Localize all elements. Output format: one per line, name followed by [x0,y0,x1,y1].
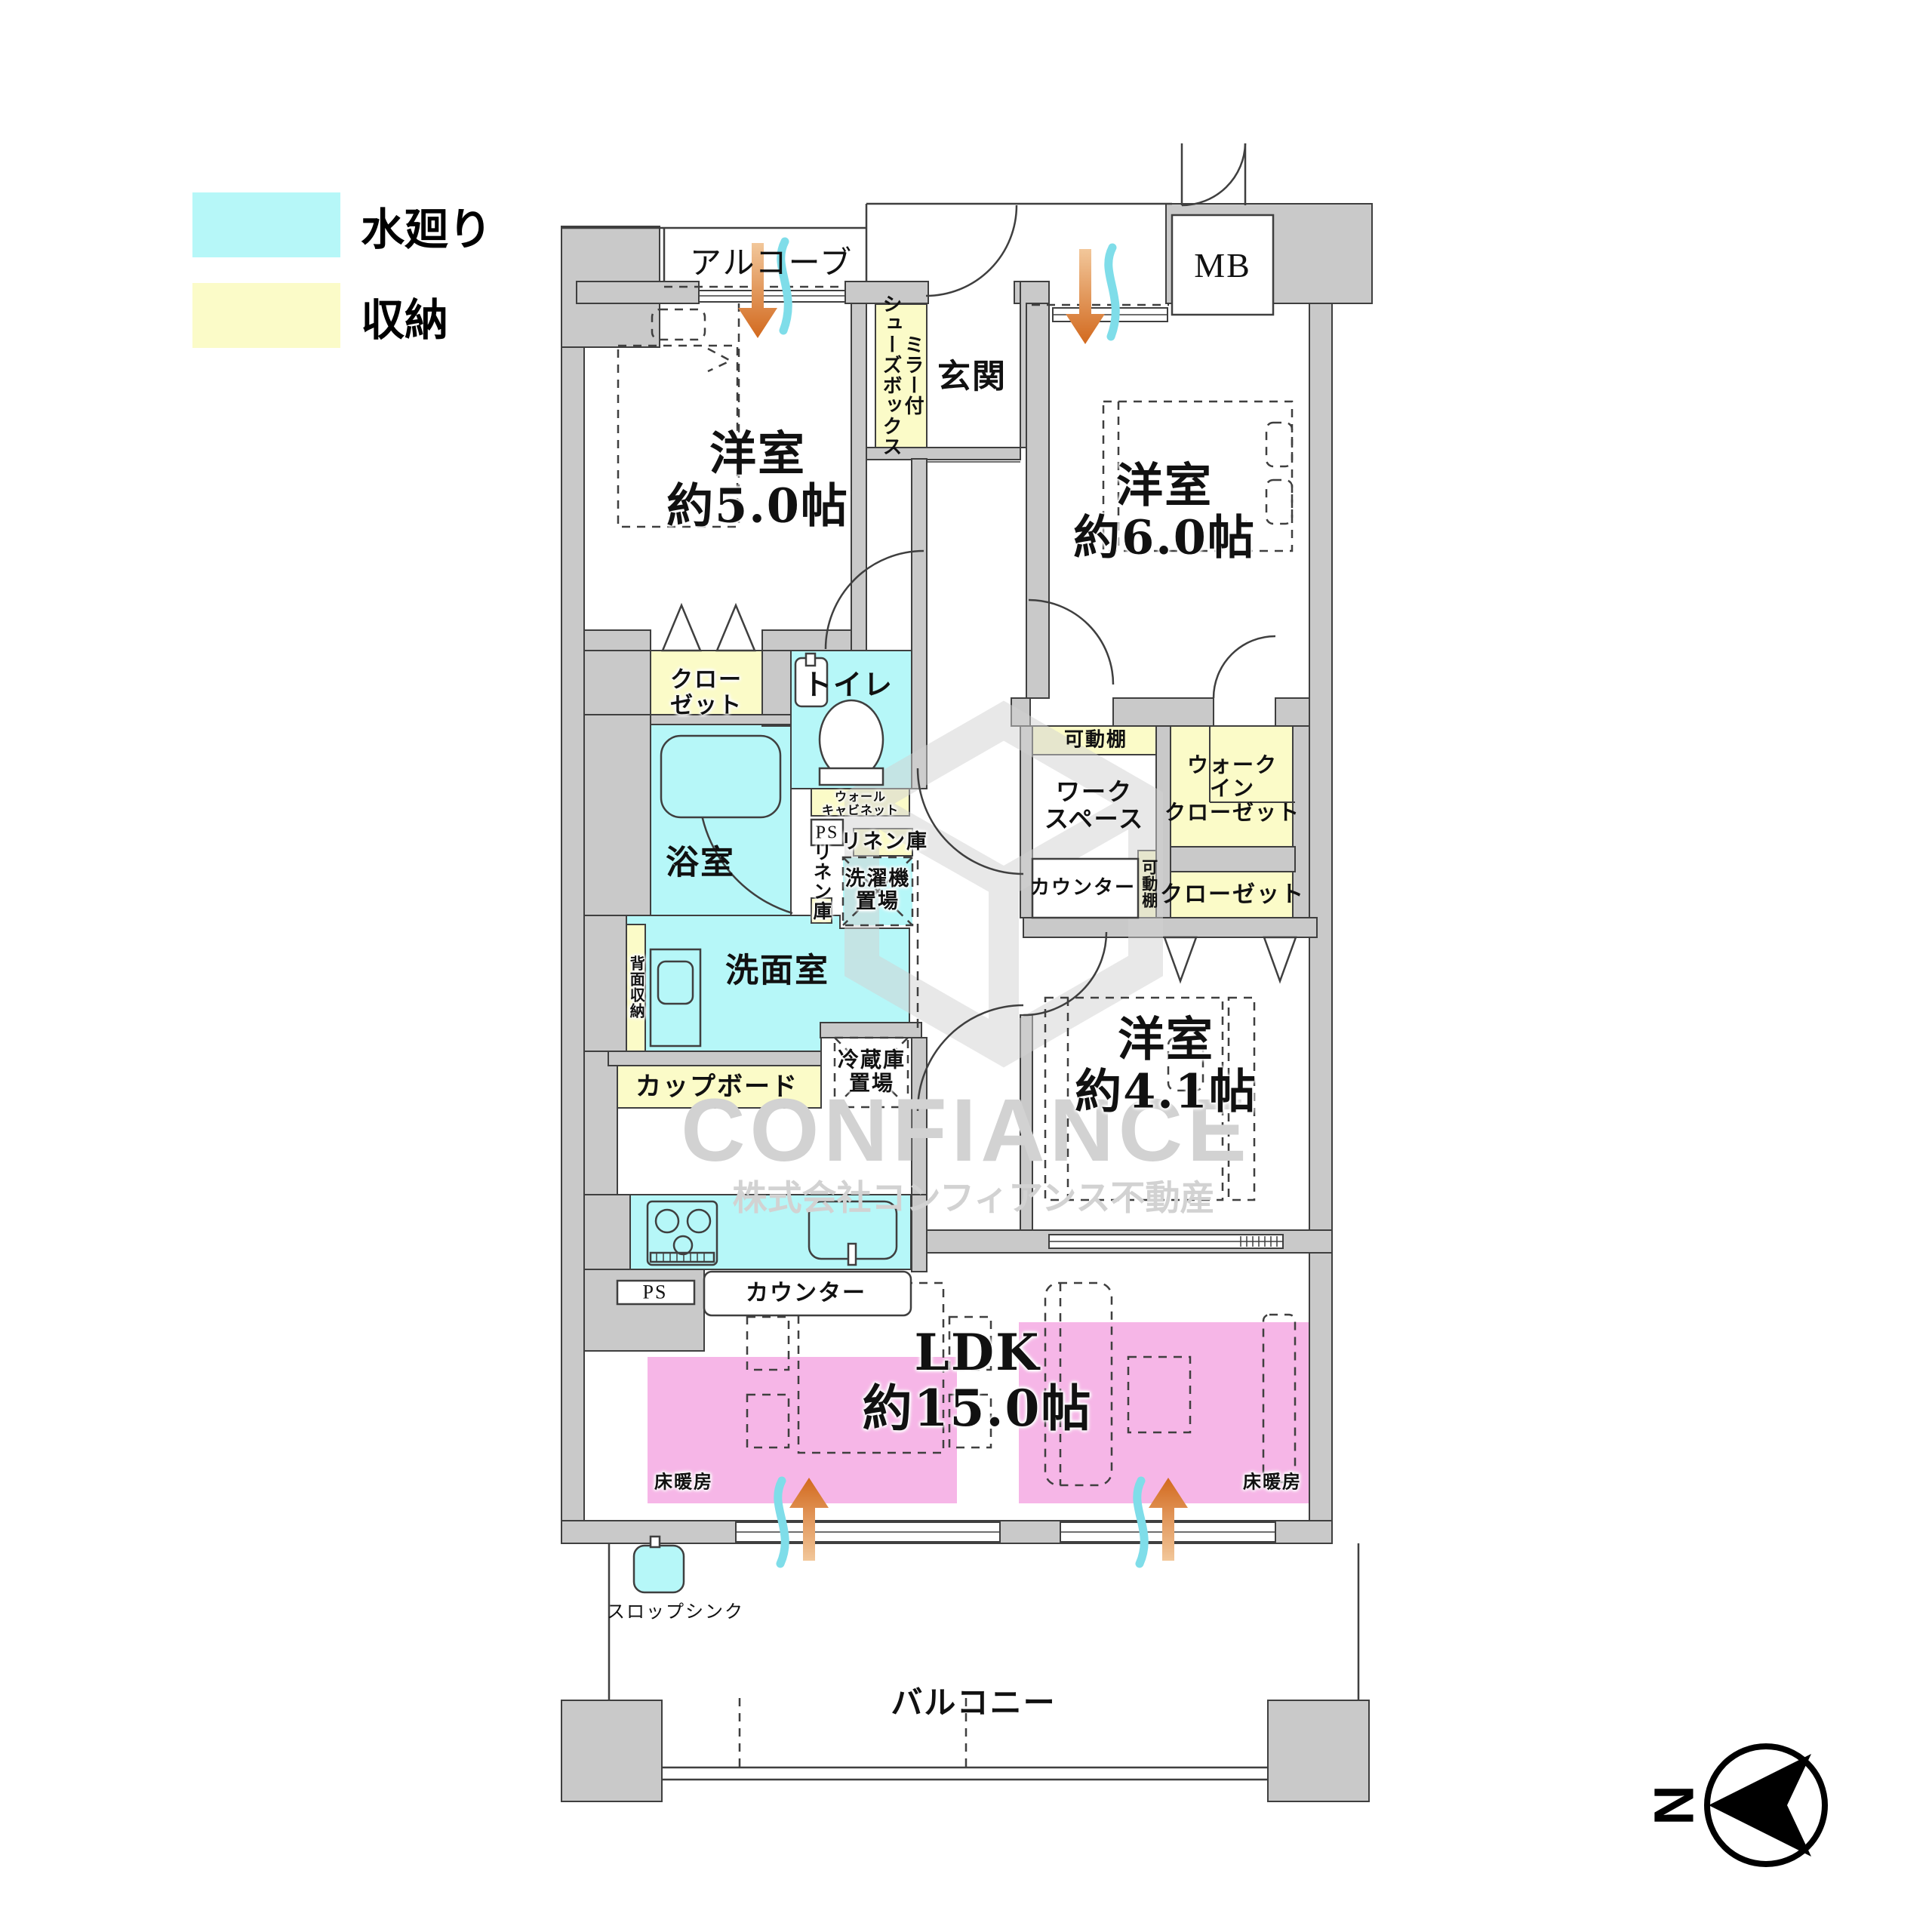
label-cupboard: カップボード [635,1072,798,1101]
kitchen-tap [848,1244,856,1265]
watermark-company: 株式会社コンフィアンス不動産 [733,1171,1215,1220]
w6-wave-icon [1109,248,1115,337]
label-shoebox: ミラー付 シューズボックス [879,294,923,457]
wall-w5-right [851,303,866,651]
label-wall-cabinet: ウォール キャビネット [822,790,899,817]
wall-filler-a [584,651,651,724]
label-washroom: 洗面室 [725,952,829,989]
slop-sink-tap [651,1537,660,1547]
w6-pillow-a [1266,423,1292,466]
label-closet-b: クローゼット [1160,882,1305,908]
compass [1707,1746,1825,1864]
hanger-triangle-4 [1264,937,1296,981]
label-counter-work: カウンター [1030,877,1136,899]
wall-filler-e [584,1051,617,1195]
wall-filler-c [584,715,651,915]
wall-w5-bottom-a [584,630,651,651]
label-western6: 洋室 約6.0帖 [1073,460,1256,565]
compass-north-label: N [1642,1785,1706,1825]
pillar-balcony-right [1268,1700,1369,1801]
w6-arrow-icon [1066,249,1105,344]
mb-door-arc [1182,143,1245,205]
legend-storage-label: 収納 [361,285,448,348]
wall-filler-f [584,1195,630,1269]
label-ldk: LDK 約15.0帖 [863,1325,1093,1437]
label-floor-heating-left: 床暖房 [654,1472,713,1493]
wall-left [561,226,584,1543]
label-floor-heating-right: 床暖房 [1243,1472,1302,1493]
label-bath: 浴室 [666,844,735,881]
label-wic: ウォーク イン クローゼット [1164,753,1300,824]
bathtub [661,736,780,817]
floorplan-canvas: 水廻り 収納 CONFIANCE 株式会社コンフィアンス不動産 アルコーブ MB… [0,0,1932,1932]
label-slop-sink: スロップシンク [607,1602,744,1623]
toilet-sink-tap [806,654,815,666]
wall-washroom-bottom-a [820,1023,921,1038]
toilet-tank [820,768,883,785]
label-back-storage: 背面収納 [628,955,645,1019]
label-closet-a: クロー ゼット [670,667,743,718]
label-ps-a: PS [816,823,839,844]
wall-w5-bottom-b [762,630,851,651]
label-fridge: 冷蔵庫 置場 [838,1048,906,1096]
label-workspace: ワーク スペース [1044,779,1144,833]
slop-sink-box [634,1546,684,1592]
label-mb: MB [1194,246,1251,285]
pillar-balcony-left [561,1700,662,1801]
wall-wic-closet-divider [1171,847,1295,872]
label-alcove: アルコーブ [690,245,853,280]
hanger-triangle-3 [1164,937,1196,981]
hanger-triangle-1 [663,605,700,651]
wall-closets-bottom [1023,918,1317,937]
label-balcony: バルコニー [891,1684,1056,1720]
label-genkan: 玄関 [937,358,1007,395]
vanity-bowl [658,961,693,1004]
wall-hall-left-a [912,459,927,789]
wall-top-a [577,281,699,303]
wall-filler-d [584,915,626,1051]
label-toilet: トイレ [803,669,894,702]
label-linen-a: リネン庫 [841,831,928,854]
legend-storage-swatch [192,283,340,348]
label-counter-kitchen: カウンター [746,1281,866,1306]
label-linen-b: リネン庫 [811,842,832,921]
wall-washroom-bottom-b [608,1051,821,1066]
label-western41: 洋室 約4.1帖 [1075,1014,1257,1118]
label-ps-b: PS [643,1281,668,1303]
label-shelf-top: 可動棚 [1064,729,1128,751]
wall-right [1309,303,1332,1521]
label-western5: 洋室 約5.0帖 [666,428,849,533]
wall-w6-left [1026,303,1049,698]
wall-w6-bottom-b [1113,698,1214,726]
hanger-triangle-2 [717,605,755,651]
legend-water-label: 水廻り [361,194,492,257]
w5-swing-arrow [708,349,731,371]
label-washer: 洗濯機 置場 [845,868,911,913]
wic-door-arc [1214,636,1275,698]
legend-water-swatch [192,192,340,257]
label-shelf-side: 可動棚 [1140,859,1158,909]
w6-pillow-b [1266,480,1292,524]
entry-door-arc [926,205,1017,296]
toilet-bowl [820,700,883,779]
